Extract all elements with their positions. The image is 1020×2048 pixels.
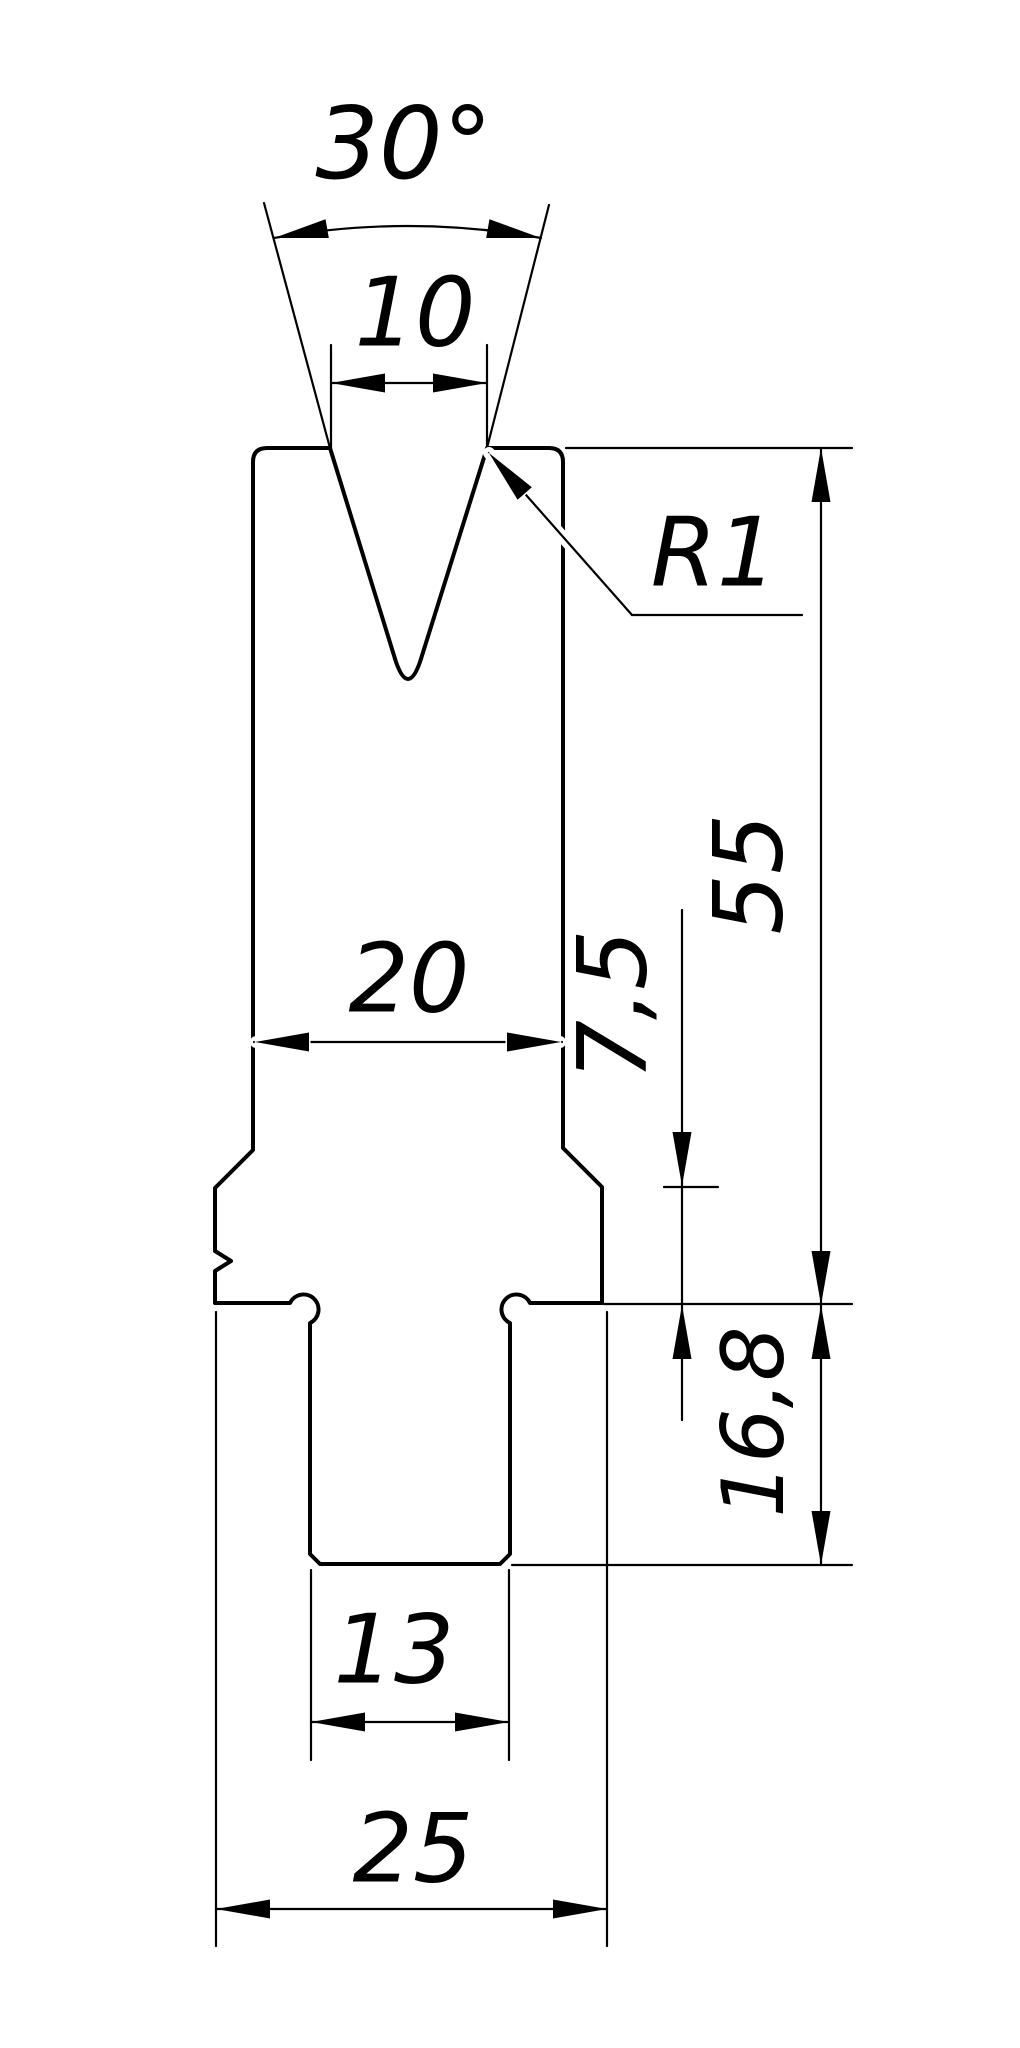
body-width-arrowhead-left	[255, 1033, 309, 1052]
angle-extension-line-left	[264, 203, 330, 448]
body-width-arrowhead-right	[507, 1033, 561, 1052]
dim-tang-width: 13	[311, 1570, 509, 1760]
shoulder-height-arrowhead-top	[673, 1132, 692, 1186]
die-cross-section-drawing: 30° 10 R1 20 55	[0, 0, 1020, 2048]
shoulder-height-label: 7,5	[558, 929, 668, 1080]
angle-arrowhead-right	[486, 219, 542, 247]
tang-arrowhead-right	[455, 1713, 509, 1732]
body-width-label: 20	[349, 924, 470, 1034]
opening-label: 10	[355, 258, 476, 368]
opening-arrowhead-right	[433, 374, 487, 393]
base-width-label: 25	[353, 1794, 474, 1904]
base-height-arrowhead-top	[812, 1305, 831, 1359]
base-arrowhead-left	[216, 1900, 270, 1919]
radius-arrowhead	[482, 447, 532, 500]
angle-extension-line-right	[487, 205, 549, 448]
base-height-arrowhead-bottom	[812, 1511, 831, 1565]
base-arrowhead-right	[553, 1900, 607, 1919]
tang-arrowhead-left	[311, 1713, 365, 1732]
angle-label: 30°	[315, 85, 492, 202]
dim-groove-opening: 10	[331, 258, 487, 452]
opening-arrowhead-left	[331, 374, 385, 393]
dim-corner-radius: R1	[482, 447, 802, 615]
tang-width-label: 13	[334, 1595, 455, 1705]
base-height-label: 16,8	[704, 1326, 804, 1517]
technical-drawing-page: 30° 10 R1 20 55	[0, 0, 1020, 2048]
working-height-arrowhead-top	[812, 448, 831, 502]
shoulder-height-arrowhead-bottom	[673, 1305, 692, 1359]
angle-arrowhead-left	[272, 219, 328, 247]
dim-base-height: 16,8	[704, 1305, 830, 1565]
working-height-arrowhead-bottom	[812, 1251, 831, 1305]
working-height-label: 55	[694, 814, 804, 935]
dim-body-width: 20	[254, 922, 562, 1052]
radius-label: R1	[651, 498, 777, 608]
